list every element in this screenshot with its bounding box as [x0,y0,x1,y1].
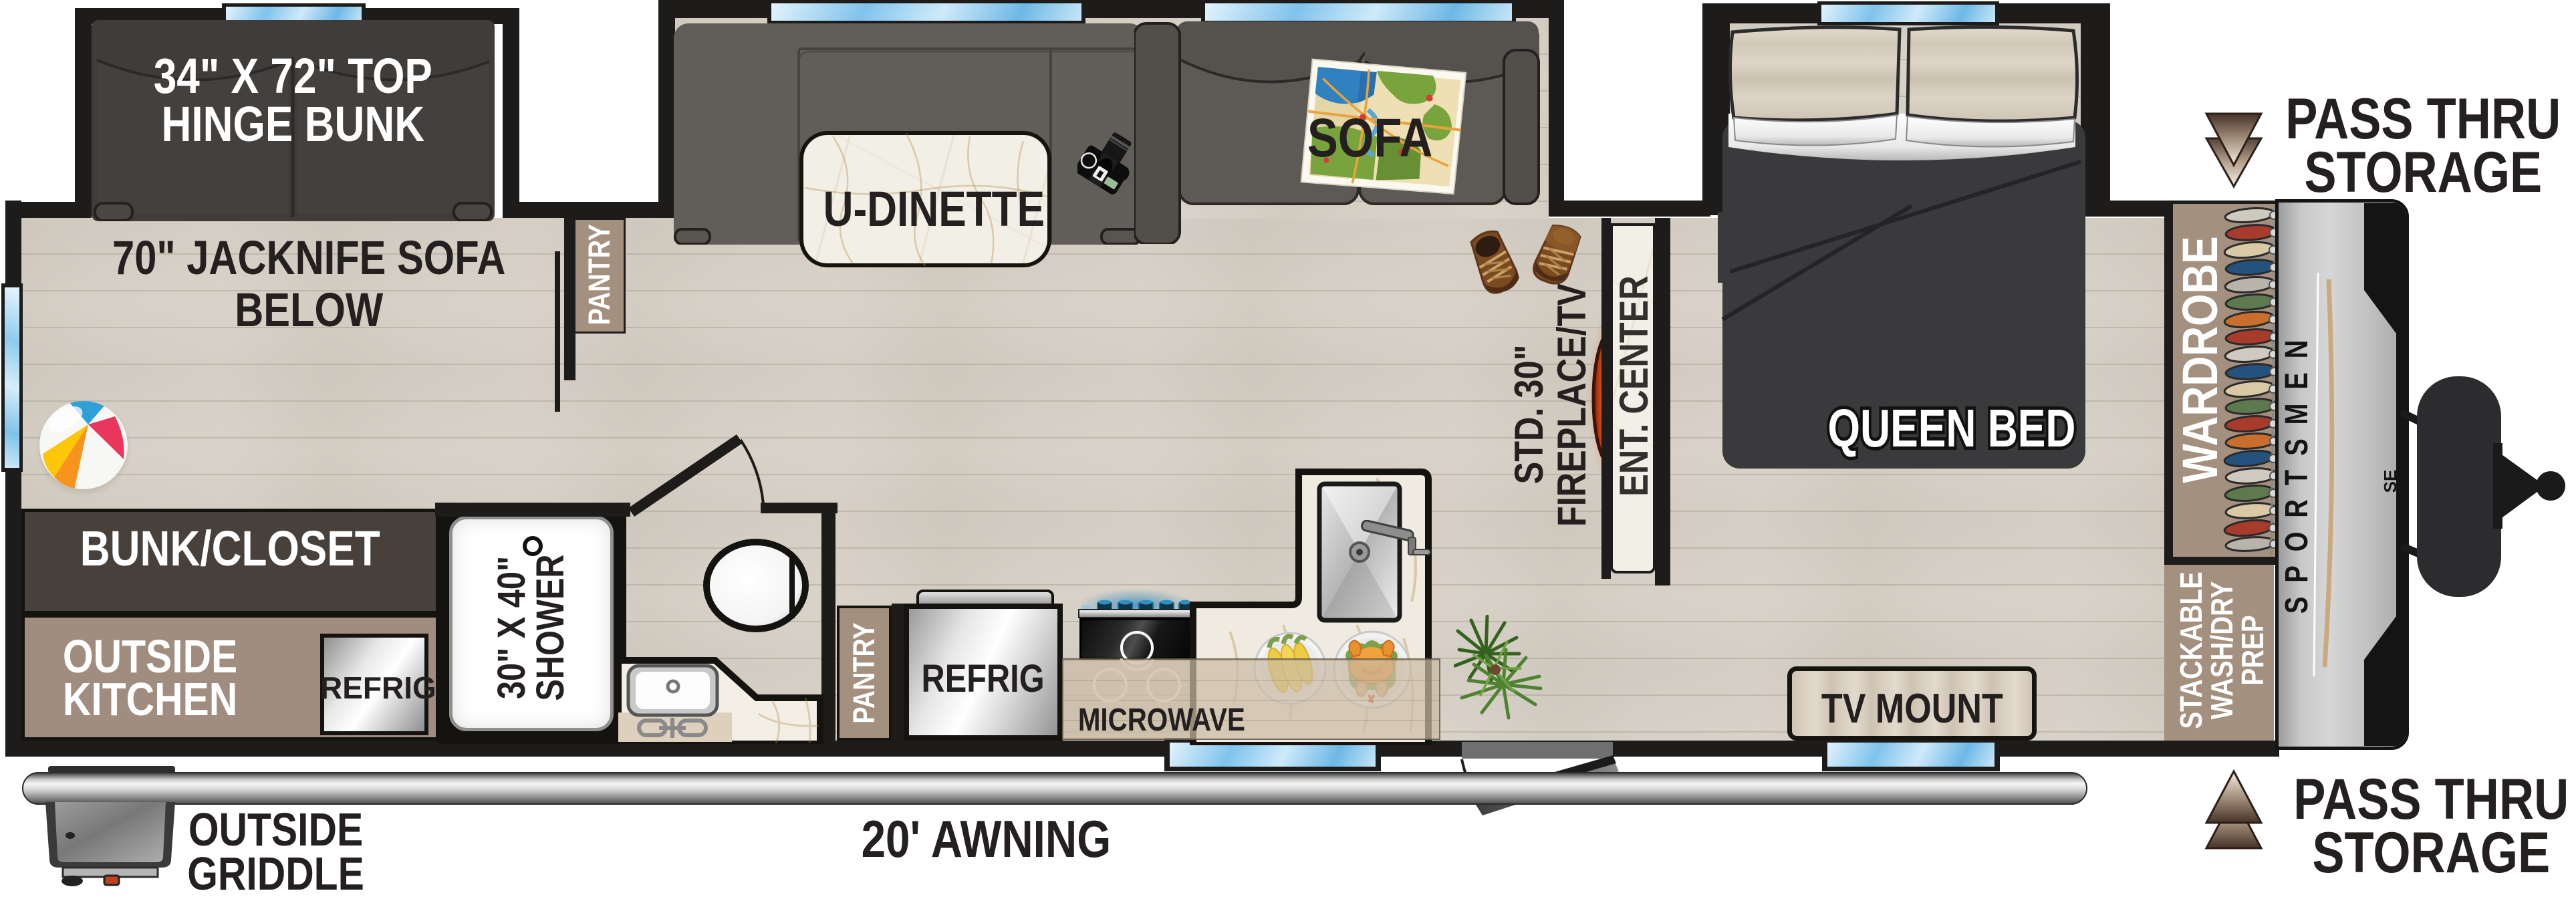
svg-text:QUEEN BED: QUEEN BED [1828,399,2076,459]
